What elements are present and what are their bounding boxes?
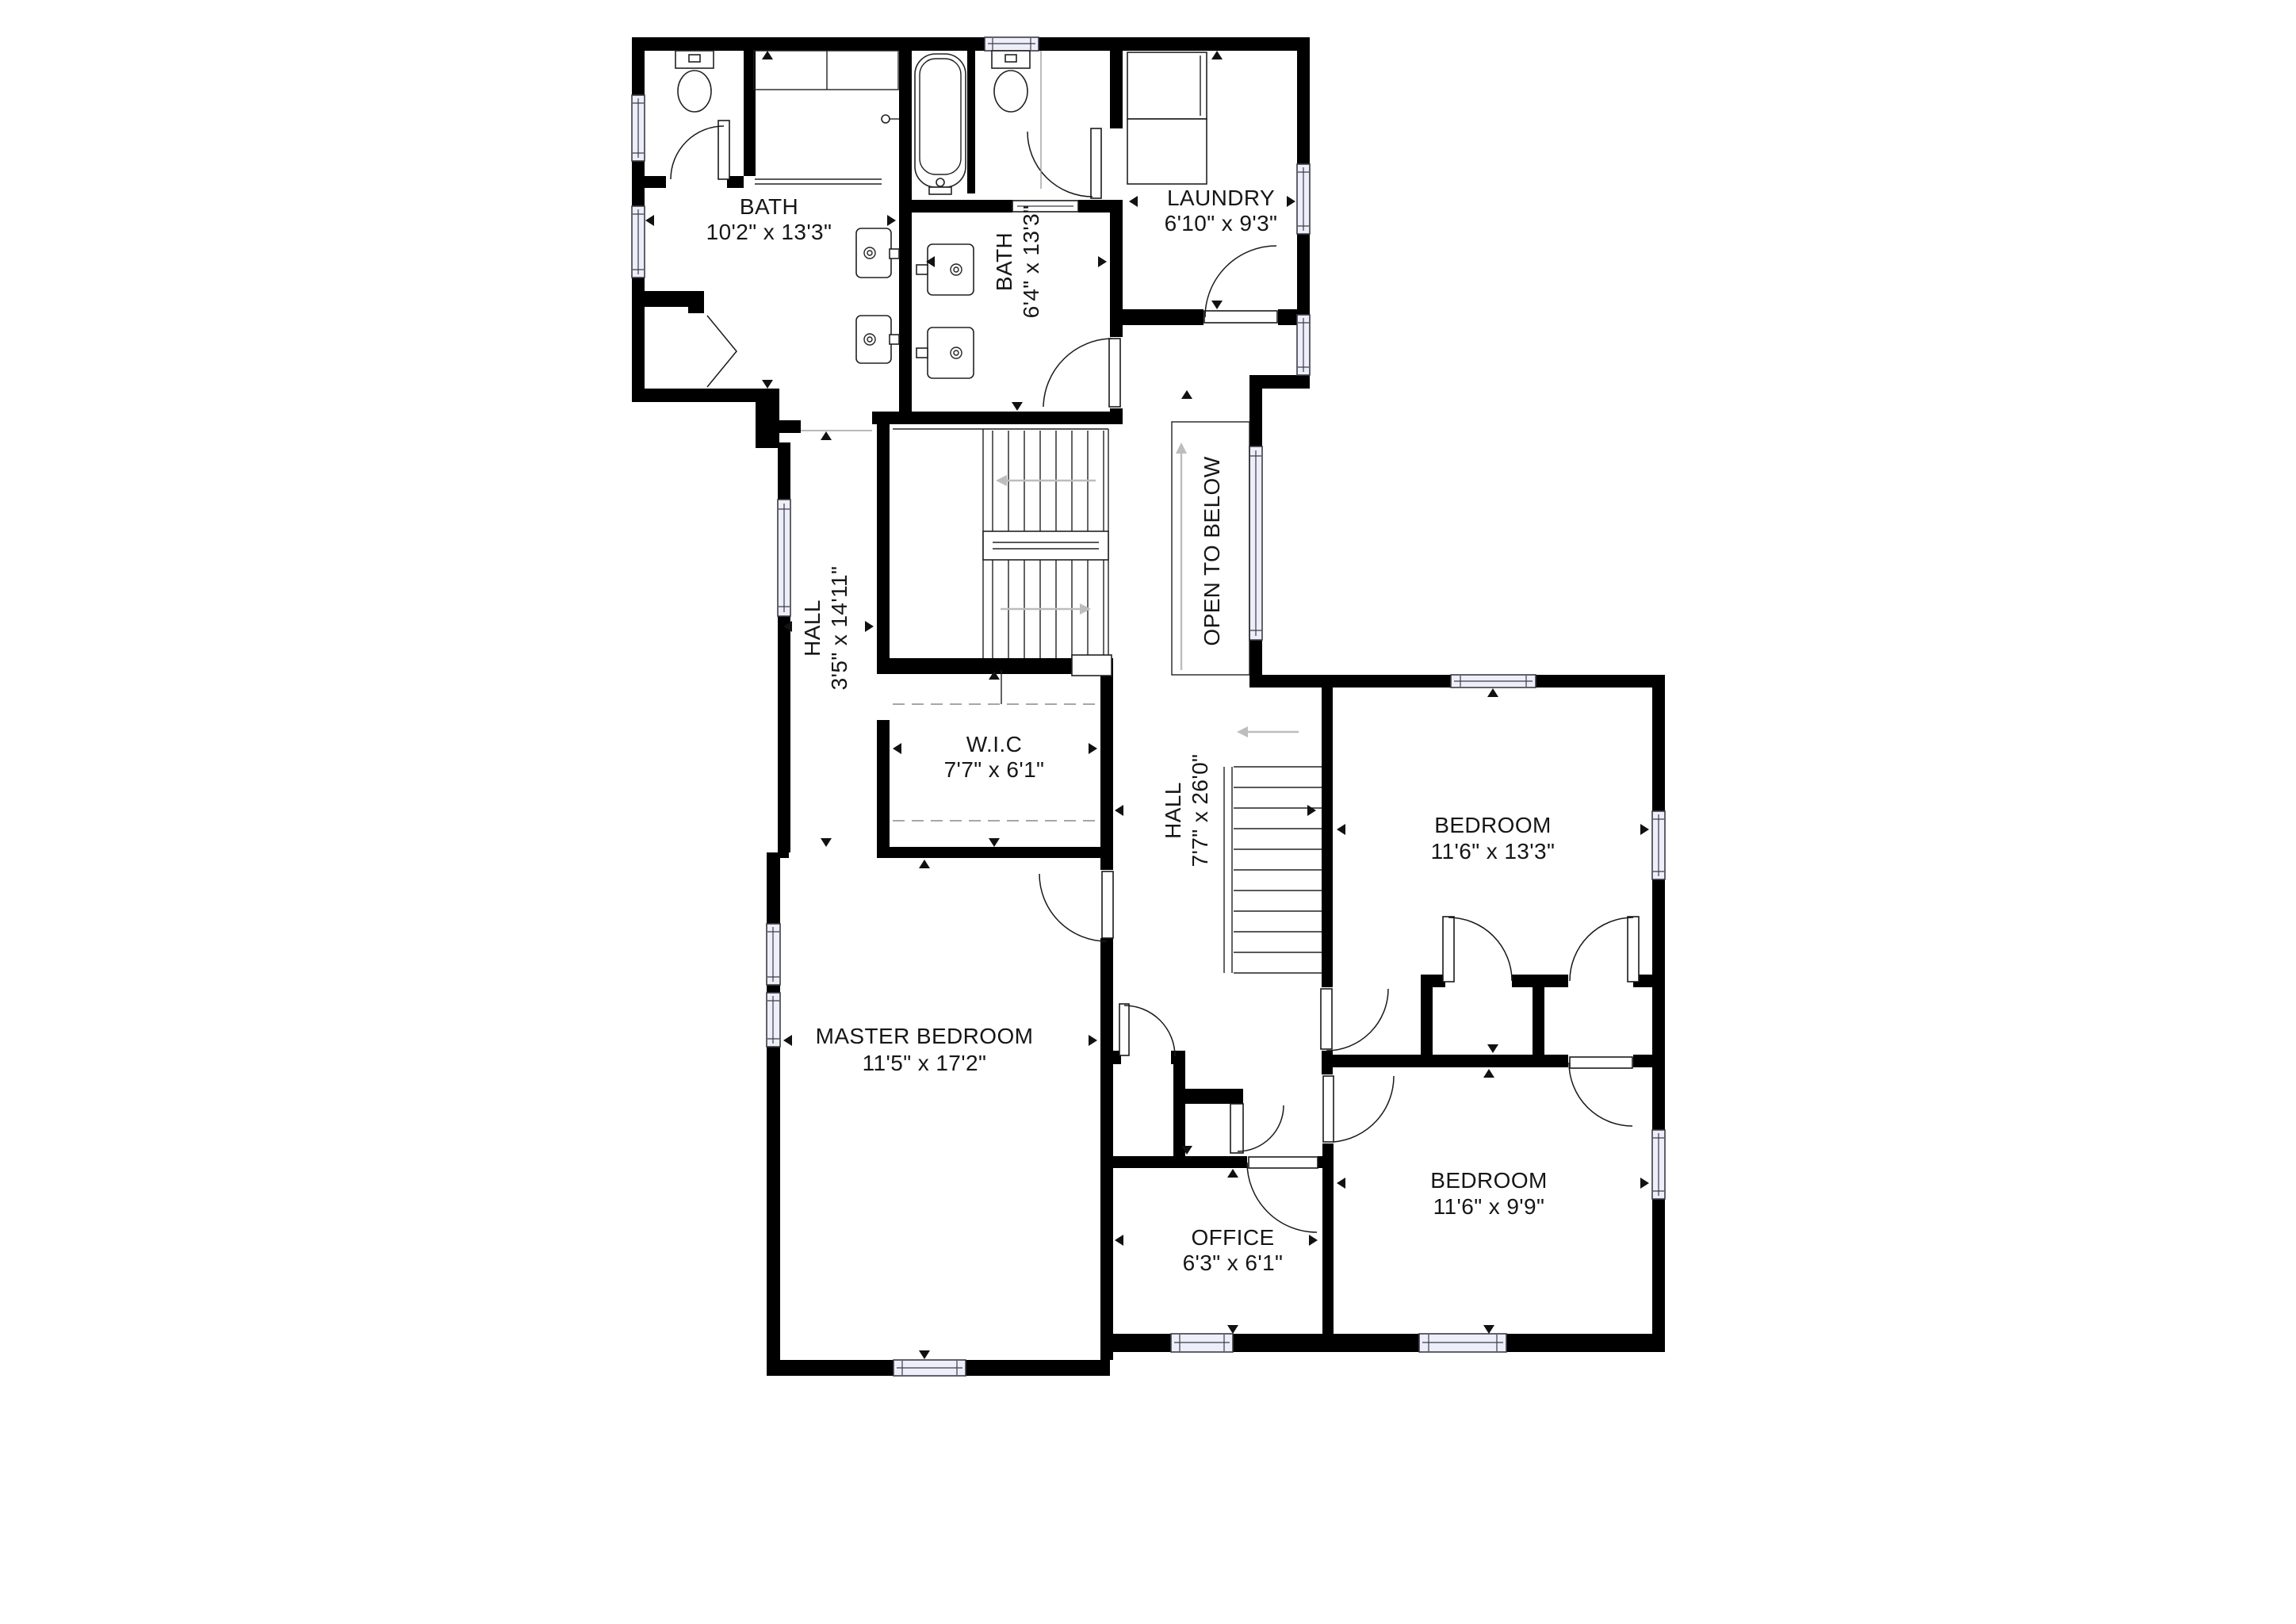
shower-fixture bbox=[754, 51, 899, 184]
window bbox=[1297, 164, 1310, 234]
room-dims-bath-ensuite: 6'4" x 13'3" bbox=[1019, 205, 1043, 319]
door bbox=[671, 121, 729, 179]
stairs-down bbox=[1224, 726, 1322, 973]
window bbox=[1652, 811, 1665, 879]
window bbox=[632, 95, 645, 161]
door bbox=[1321, 989, 1388, 1051]
door bbox=[1204, 246, 1277, 323]
room-labels: BATH 10'2" x 13'3" LAUNDRY 6'10" x 9'3" … bbox=[706, 186, 1556, 1275]
window bbox=[1652, 1130, 1665, 1199]
bathtub-fixture bbox=[915, 54, 966, 194]
room-dims-bedroom-1: 11'6" x 13'3" bbox=[1431, 839, 1556, 864]
washer-dryer-fixture bbox=[1127, 52, 1207, 184]
room-label-master: MASTER BEDROOM bbox=[816, 1024, 1034, 1048]
window bbox=[894, 1360, 966, 1376]
room-label-bath-ensuite: BATH bbox=[992, 232, 1016, 291]
door bbox=[1443, 917, 1512, 982]
window bbox=[767, 924, 780, 985]
bifold-door bbox=[707, 316, 737, 387]
sink-fixture bbox=[856, 228, 899, 278]
window bbox=[1297, 315, 1310, 375]
window bbox=[1249, 446, 1262, 640]
room-dims-bedroom-2: 11'6" x 9'9" bbox=[1433, 1194, 1545, 1219]
room-dims-wic: 7'7" x 6'1" bbox=[944, 757, 1045, 782]
window bbox=[778, 500, 790, 616]
room-label-open-below: OPEN TO BELOW bbox=[1200, 456, 1224, 645]
toilet-fixture bbox=[992, 51, 1030, 112]
window bbox=[767, 993, 780, 1047]
room-dims-hall-upper: 3'5" x 14'11" bbox=[827, 566, 851, 691]
door bbox=[1247, 1157, 1318, 1232]
room-dims-office: 6'3" x 6'1" bbox=[1183, 1251, 1284, 1275]
door bbox=[1569, 1057, 1632, 1126]
floor-plan: BATH 10'2" x 13'3" LAUNDRY 6'10" x 9'3" … bbox=[0, 0, 2296, 1624]
door bbox=[1039, 871, 1113, 941]
room-label-bedroom-1: BEDROOM bbox=[1434, 813, 1551, 837]
window bbox=[985, 37, 1039, 51]
sink-fixture bbox=[856, 316, 899, 363]
door bbox=[1119, 1004, 1175, 1056]
stairs-upper bbox=[893, 429, 1112, 676]
door bbox=[1027, 128, 1101, 198]
room-label-office: OFFICE bbox=[1191, 1225, 1274, 1250]
room-label-hall-upper: HALL bbox=[800, 599, 825, 657]
door bbox=[1043, 339, 1120, 407]
room-dims-hall-main: 7'7" x 26'0" bbox=[1188, 754, 1212, 868]
room-dims-bath-main: 10'2" x 13'3" bbox=[706, 220, 832, 244]
room-dims-laundry: 6'10" x 9'3" bbox=[1165, 211, 1278, 236]
window bbox=[1451, 675, 1536, 688]
room-label-bedroom-2: BEDROOM bbox=[1430, 1168, 1547, 1193]
door bbox=[1570, 917, 1639, 982]
toilet-fixture bbox=[675, 51, 714, 112]
room-label-bath-main: BATH bbox=[740, 194, 798, 219]
window bbox=[1419, 1334, 1506, 1352]
room-label-laundry: LAUNDRY bbox=[1167, 186, 1275, 210]
door bbox=[1323, 1076, 1394, 1142]
window bbox=[1171, 1334, 1233, 1352]
room-dims-master: 11'5" x 17'2" bbox=[863, 1051, 987, 1075]
room-label-hall-main: HALL bbox=[1161, 782, 1185, 839]
sink-fixture bbox=[916, 244, 974, 295]
room-label-wic: W.I.C bbox=[966, 732, 1022, 756]
window bbox=[632, 206, 645, 278]
sink-fixture bbox=[916, 327, 974, 378]
door bbox=[1230, 1104, 1284, 1153]
